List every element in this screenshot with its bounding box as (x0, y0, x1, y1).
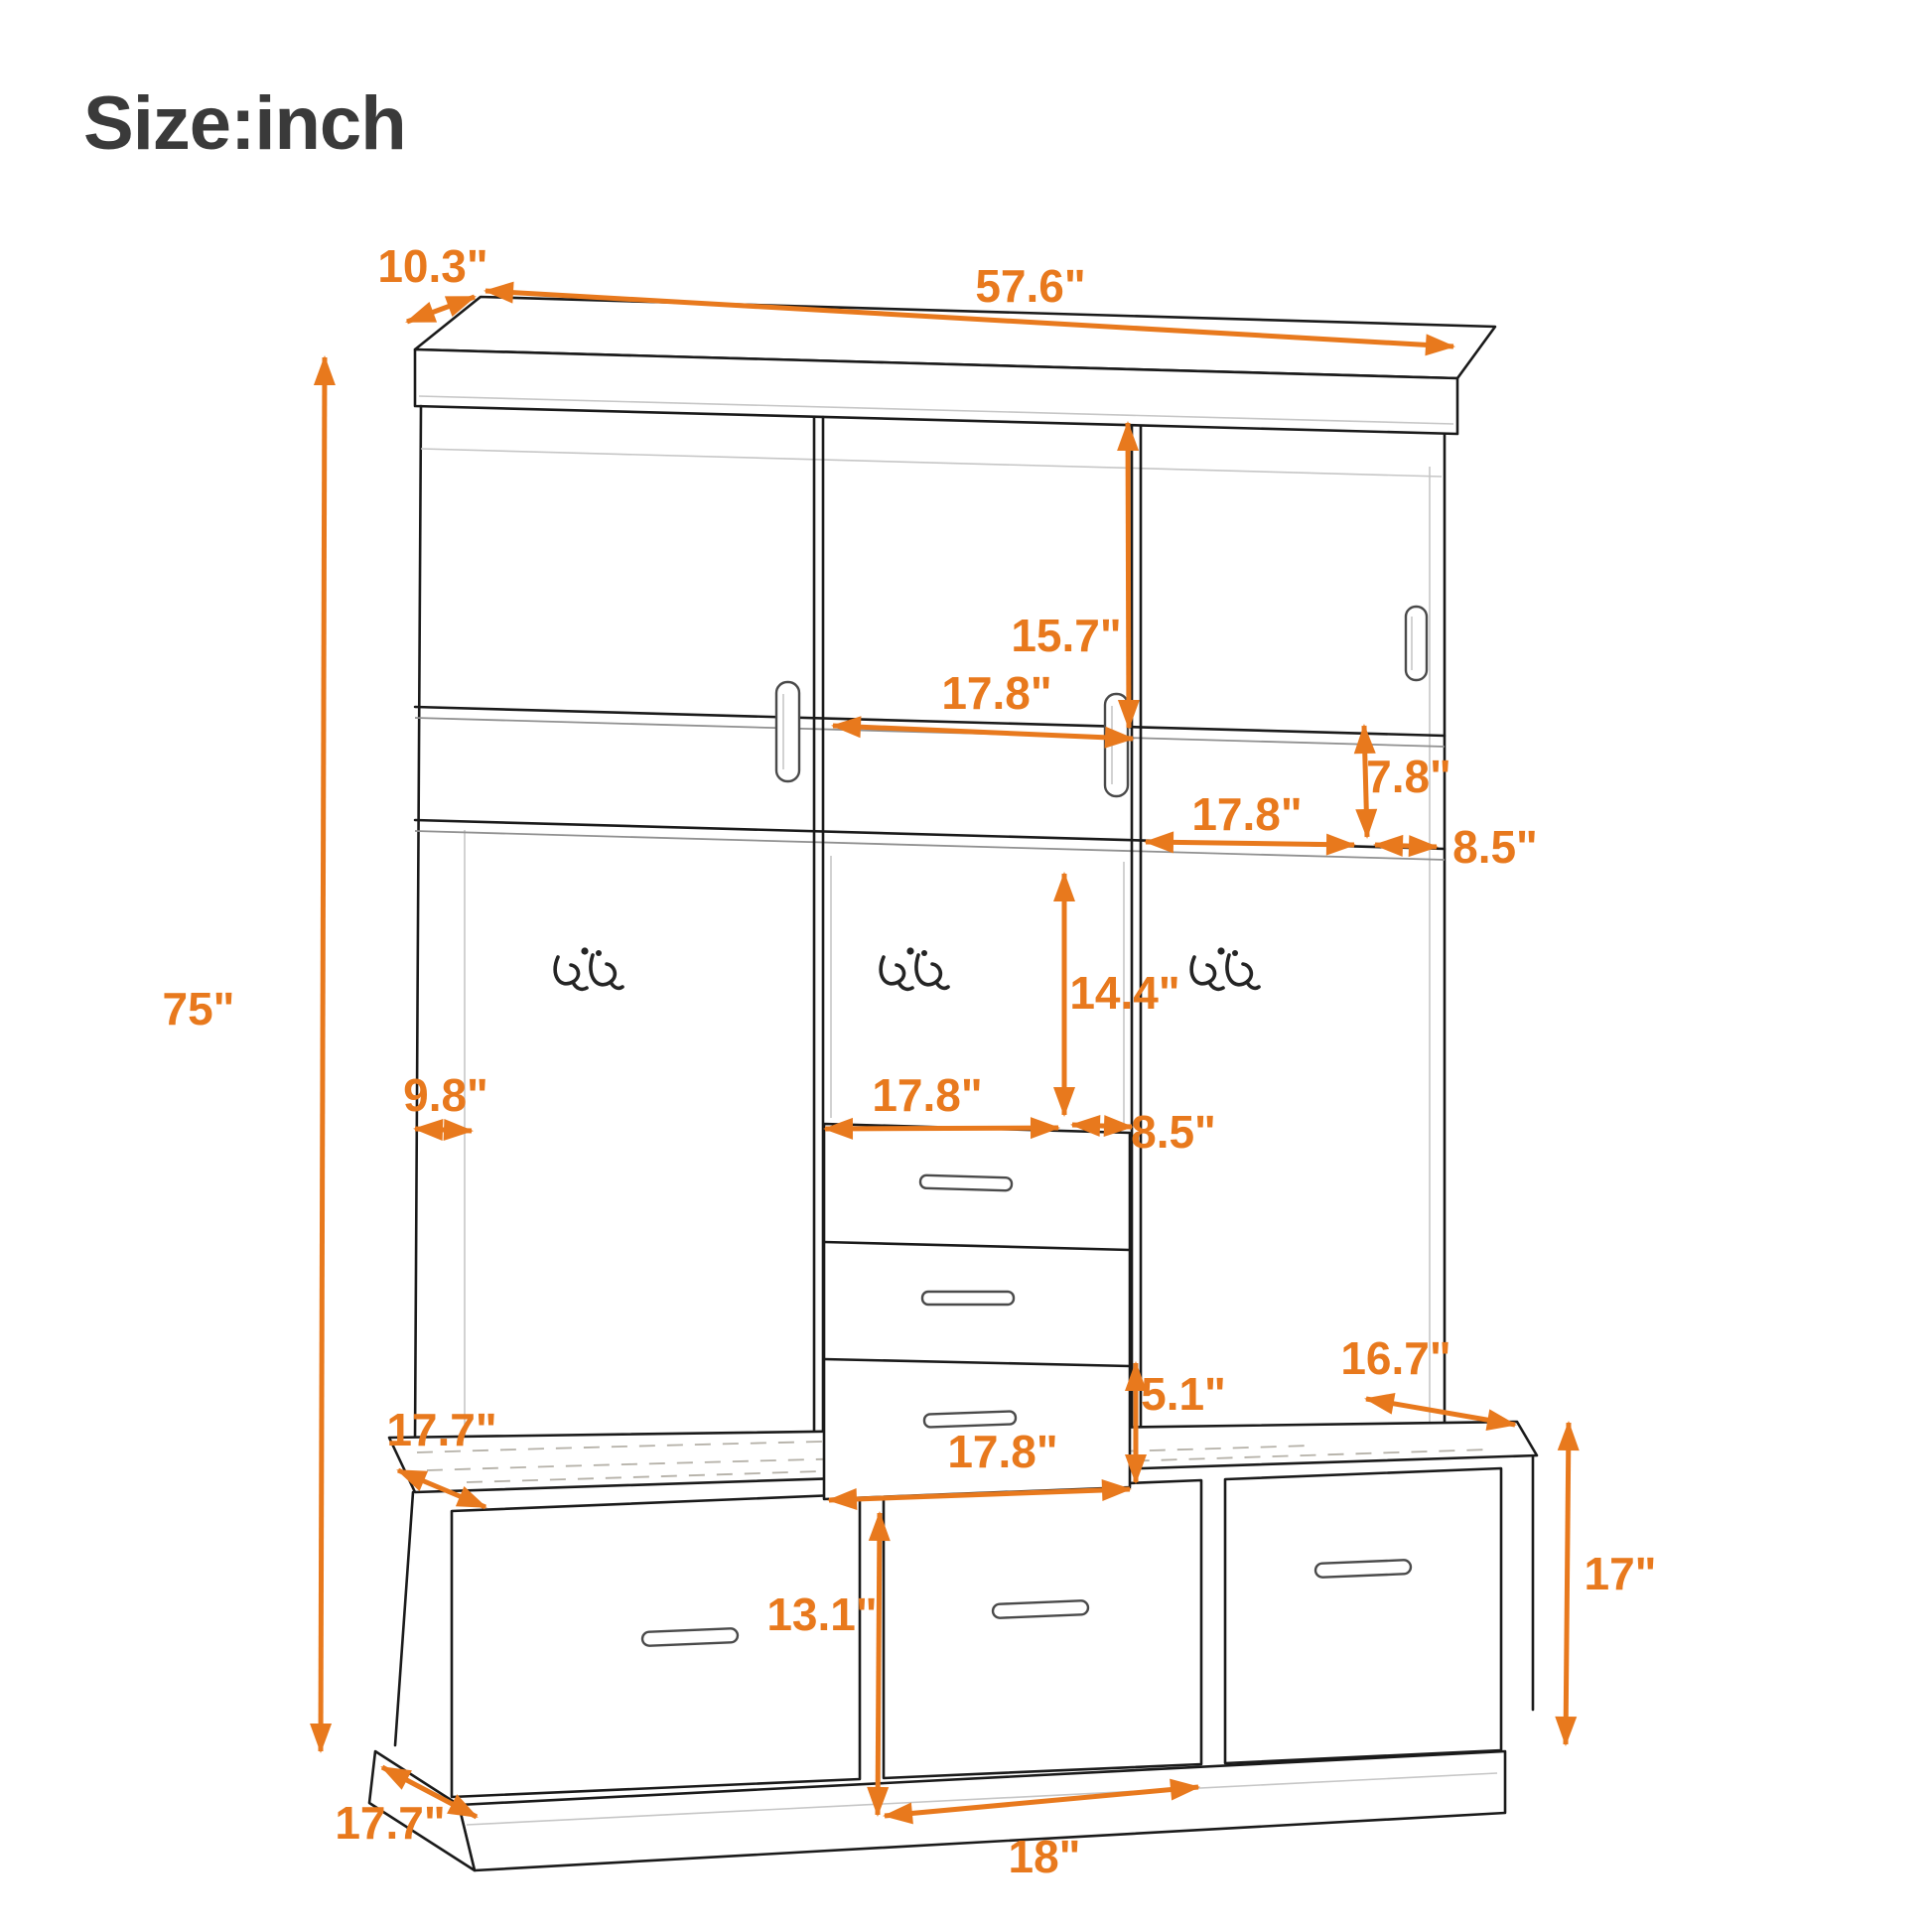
bench-body (395, 1456, 1533, 1797)
page-title: Size:inch (83, 81, 406, 166)
dim-bench-top-depth-label: 17.7" (386, 1404, 496, 1455)
bench-drawer (884, 1480, 1201, 1778)
dim-small-drawer-width-label: 17.8" (947, 1426, 1057, 1477)
dim-right-cubby-width-arrow (1375, 845, 1437, 847)
coat-hook-icon (555, 947, 622, 989)
dim-cubby-width-label: 17.8" (1191, 788, 1302, 840)
dim-upper-door-width-label: 17.8" (941, 667, 1051, 719)
dim-side-width-arrow (1072, 1125, 1132, 1127)
furniture-dimension-diagram: Size:inch (0, 0, 1932, 1932)
drawer-handle-icon (920, 1175, 1012, 1191)
dim-small-drawer-height-label: 5.1" (1141, 1368, 1226, 1420)
dim-bench-drawer-width-label: 18" (1009, 1831, 1081, 1882)
drawer-handle-icon (1315, 1560, 1411, 1578)
door-handle-icon (776, 682, 799, 781)
dim-upper-door-height-label: 15.7" (1011, 610, 1121, 661)
door-handle-icon (1105, 694, 1128, 796)
bench-drawer (1225, 1468, 1501, 1763)
dim-overall-height-label: 75" (163, 983, 235, 1035)
dim-upper-door-width-arrow (833, 726, 1133, 739)
dim-bench-drawer-height-arrow (878, 1513, 880, 1815)
dim-overall-height-arrow (321, 357, 325, 1751)
dim-bench-height-label: 17" (1585, 1548, 1657, 1599)
coat-hook-icon (881, 947, 948, 989)
dim-hook-area-height-label: 14.4" (1069, 967, 1179, 1019)
dim-bench-overhang-depth-label: 16.7" (1340, 1332, 1450, 1384)
dim-upper-depth-label: 9.8" (403, 1069, 488, 1121)
drawer-handle-icon (642, 1628, 738, 1646)
dim-bench-drawer-height-label: 13.1" (766, 1588, 877, 1640)
coat-hook-icon (1191, 947, 1259, 989)
dim-side-width-label: 8.5" (1131, 1106, 1216, 1158)
dim-bench-height-arrow (1566, 1423, 1569, 1744)
dim-middle-width-arrow (825, 1128, 1058, 1129)
dim-upper-depth-arrow (415, 1129, 472, 1131)
dim-right-cubby-width-label: 8.5" (1452, 821, 1538, 873)
dim-cubby-height-label: 7.8" (1366, 751, 1451, 802)
dim-upper-door-height-arrow (1128, 423, 1129, 728)
drawer-handle-icon (922, 1292, 1014, 1305)
dim-base-depth-label: 17.7" (335, 1797, 445, 1849)
dim-top-width-label: 57.6" (975, 260, 1085, 312)
dim-middle-width-label: 17.8" (872, 1069, 982, 1121)
drawer-handle-icon (993, 1600, 1088, 1618)
door-handle-icon (1406, 607, 1427, 680)
dim-top-depth-label: 10.3" (377, 240, 487, 292)
dim-bench-overhang-depth-arrow (1366, 1399, 1515, 1425)
dim-cubby-width-arrow (1146, 842, 1354, 845)
